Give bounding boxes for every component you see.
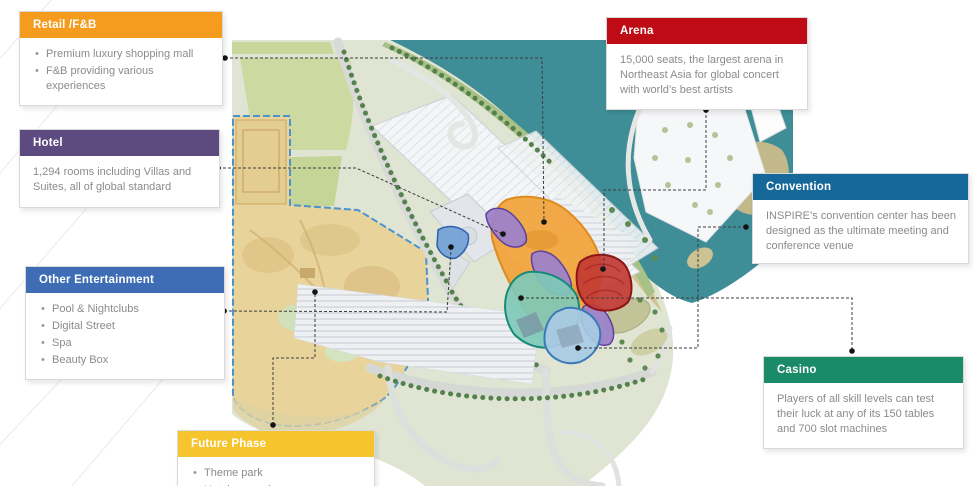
callout-convention: Convention INSPIRE’s convention center h… — [752, 173, 969, 264]
callout-casino: Casino Players of all skill levels can t… — [763, 356, 964, 449]
callout-retail-title: Retail /F&B — [20, 12, 222, 38]
list-item: Beauty Box — [39, 353, 214, 368]
callout-arena-title: Arena — [607, 18, 807, 44]
callout-arena-body: 15,000 seats, the largest arena in North… — [607, 44, 807, 107]
callout-other-entertainment: Other Entertainment Pool & Nightclubs Di… — [25, 266, 225, 380]
list-item: Theme park — [191, 466, 364, 481]
callout-hotel: Hotel 1,294 rooms including Villas and S… — [19, 129, 220, 208]
list-item: F&B providing various experiences — [33, 64, 212, 94]
field — [232, 42, 334, 54]
callout-convention-body: INSPIRE’s convention center has been des… — [753, 200, 968, 263]
callout-other-list: Pool & Nightclubs Digital Street Spa Bea… — [39, 302, 214, 368]
callout-convention-title: Convention — [753, 174, 968, 200]
list-item: Pool & Nightclubs — [39, 302, 214, 317]
callout-casino-body: Players of all skill levels can test the… — [764, 383, 963, 446]
callout-future-list: Theme park Hotel expansion — [191, 466, 364, 486]
callout-hotel-title: Hotel — [20, 130, 219, 156]
callout-retail-list: Premium luxury shopping mall F&B providi… — [33, 47, 212, 94]
callout-hotel-body: 1,294 rooms including Villas and Suites,… — [20, 156, 219, 204]
callout-arena: Arena 15,000 seats, the largest arena in… — [606, 17, 808, 110]
list-item: Digital Street — [39, 319, 214, 334]
list-item: Premium luxury shopping mall — [33, 47, 212, 62]
resort-masterplan-slide: Retail /F&B Premium luxury shopping mall… — [0, 0, 980, 486]
callout-future-title: Future Phase — [178, 431, 374, 457]
callout-other-title: Other Entertainment — [26, 267, 224, 293]
callout-retail-fnb: Retail /F&B Premium luxury shopping mall… — [19, 11, 223, 106]
callout-future-phase: Future Phase Theme park Hotel expansion — [177, 430, 375, 486]
list-item: Spa — [39, 336, 214, 351]
callout-casino-title: Casino — [764, 357, 963, 383]
